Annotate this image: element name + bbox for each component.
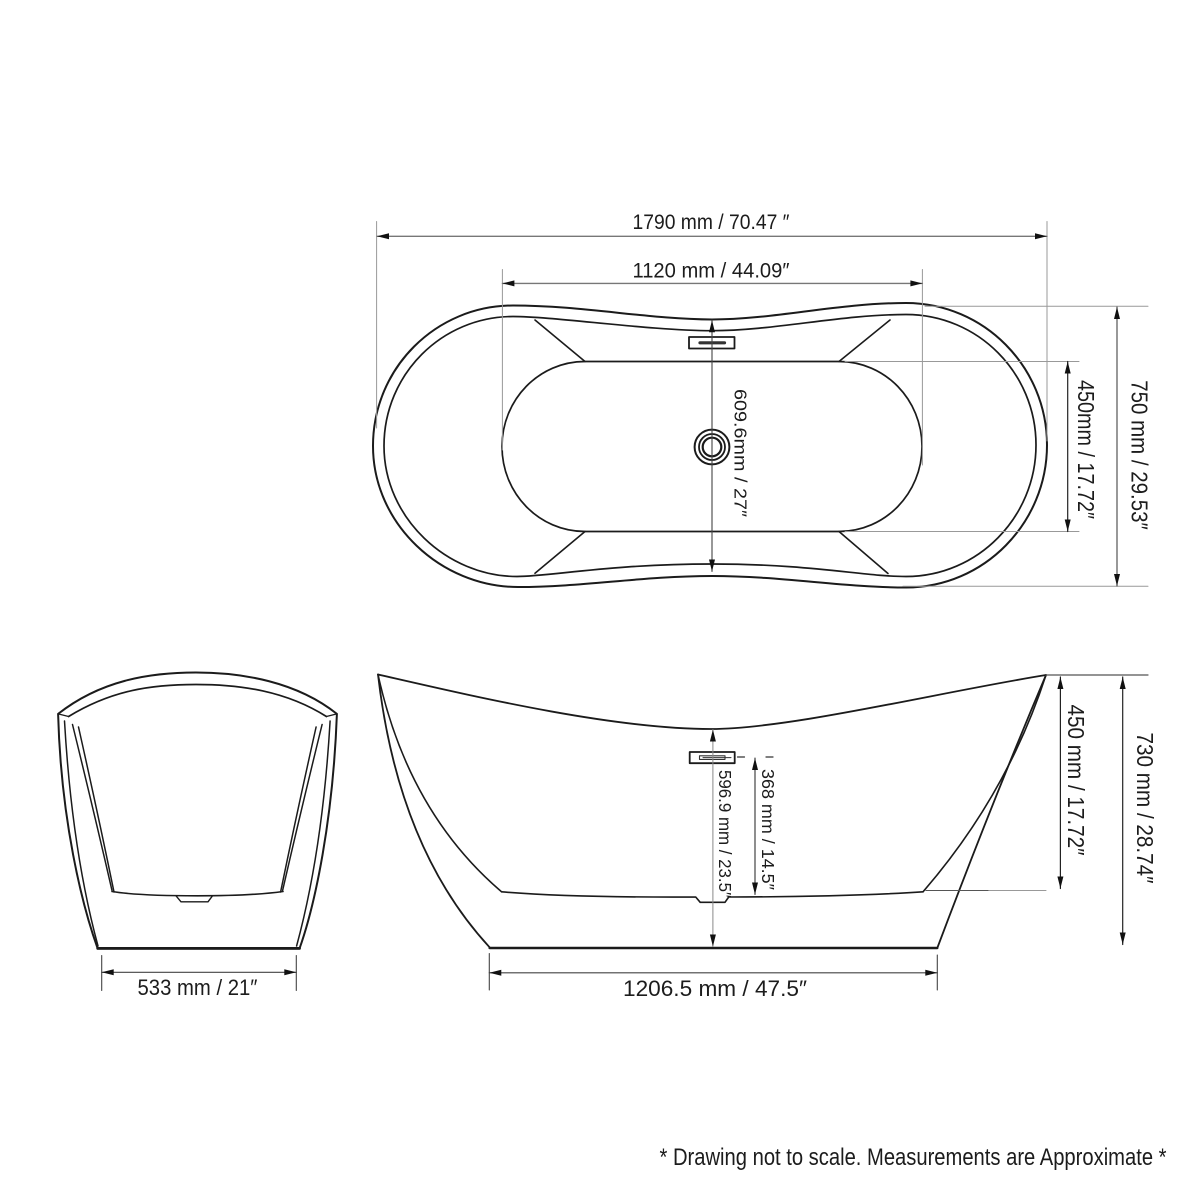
svg-text:750 mm / 29.53″: 750 mm / 29.53″ xyxy=(1127,380,1153,530)
svg-text:450 mm / 17.72″: 450 mm / 17.72″ xyxy=(1063,705,1089,856)
svg-text:596.9 mm / 23.5″: 596.9 mm / 23.5″ xyxy=(715,770,735,898)
svg-text:450mm / 17.72″: 450mm / 17.72″ xyxy=(1073,380,1099,519)
svg-text:609.6mm / 27″: 609.6mm / 27″ xyxy=(731,389,751,517)
svg-text:533 mm / 21″: 533 mm / 21″ xyxy=(138,975,258,1000)
svg-text:1790 mm / 70.47 ″: 1790 mm / 70.47 ″ xyxy=(633,211,791,234)
svg-text:1206.5 mm / 47.5″: 1206.5 mm / 47.5″ xyxy=(623,976,807,1001)
svg-text:730 mm / 28.74″: 730 mm / 28.74″ xyxy=(1132,733,1158,884)
svg-text:* Drawing not to scale. Measur: * Drawing not to scale. Measurements are… xyxy=(660,1144,1167,1171)
svg-text:1120 mm / 44.09″: 1120 mm / 44.09″ xyxy=(633,260,791,283)
svg-text:368 mm / 14.5″: 368 mm / 14.5″ xyxy=(758,769,778,890)
